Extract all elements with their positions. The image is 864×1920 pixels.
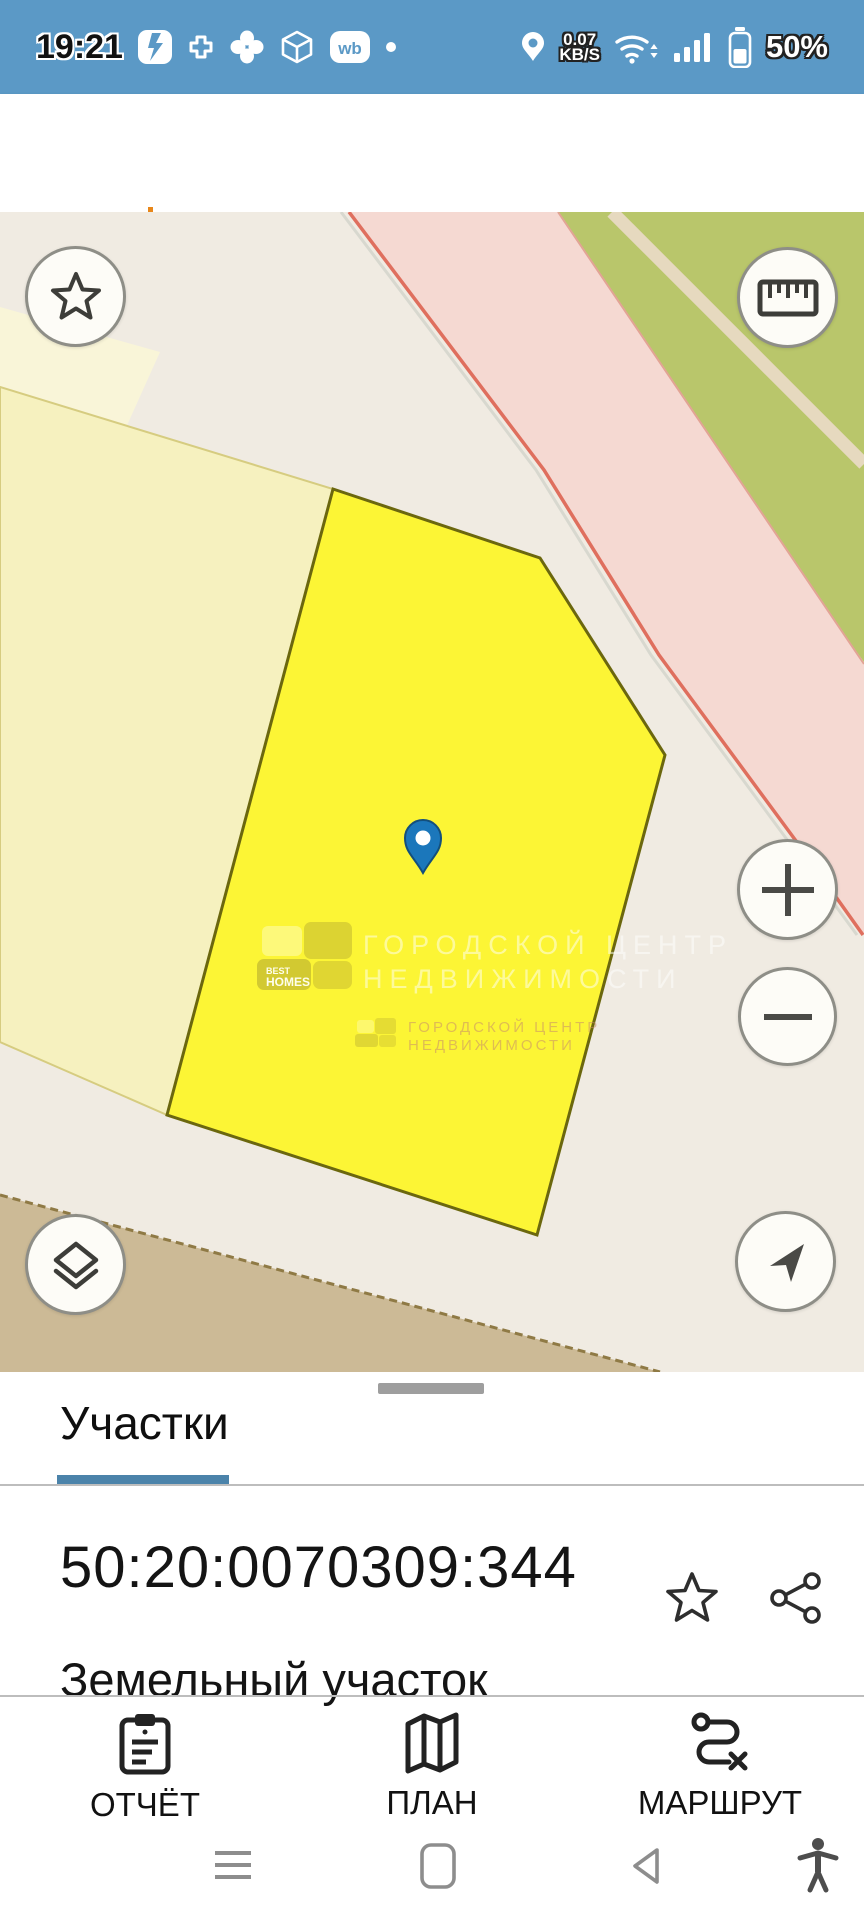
share-parcel-button[interactable] [768, 1570, 824, 1626]
measure-button[interactable] [737, 247, 838, 348]
battery-percent: 50% [766, 29, 828, 65]
minus-icon [757, 986, 819, 1048]
report-label: ОТЧЁТ [90, 1786, 200, 1824]
accessibility-button[interactable] [796, 1836, 840, 1894]
three-lines-icon [212, 1845, 254, 1885]
parcel-type: Земельный участок [60, 1652, 488, 1707]
battery-icon [728, 26, 752, 68]
sheet-drag-handle[interactable] [378, 1383, 484, 1394]
box-notification-icon [279, 29, 315, 65]
svg-text:НЕДВИЖИМОСТИ: НЕДВИЖИМОСТИ [408, 1037, 575, 1054]
layers-button[interactable] [25, 1214, 126, 1315]
app-notification-icon [137, 29, 173, 65]
home-button[interactable] [418, 1841, 458, 1891]
tab-active-indicator [57, 1475, 229, 1484]
divider [0, 1695, 864, 1697]
wb-notification-icon: wb [329, 30, 371, 64]
divider [0, 1484, 864, 1486]
route-icon [689, 1712, 751, 1774]
plus-icon [757, 859, 819, 921]
zoom-out-button[interactable] [738, 967, 837, 1066]
bottom-sheet [0, 1372, 864, 1920]
favorites-button[interactable] [25, 246, 126, 347]
clock: 19:21 [36, 28, 123, 67]
report-button[interactable]: ОТЧЁТ [35, 1712, 255, 1824]
svg-text:ГОРОДСКОЙ ЦЕНТР: ГОРОДСКОЙ ЦЕНТР [408, 1018, 600, 1036]
star-icon [662, 1568, 722, 1628]
map-canvas[interactable]: BEST HOMES ГОРОДСКОЙ ЦЕНТР НЕДВИЖИМОСТИ … [0, 212, 864, 1372]
screen: 19:21 wb 0.07 [0, 0, 864, 1920]
route-button[interactable]: МАРШРУТ [610, 1712, 830, 1822]
favorite-parcel-button[interactable] [662, 1568, 722, 1628]
dot-notification-icon [385, 41, 397, 53]
svg-text:ГОРОДСКОЙ ЦЕНТР: ГОРОДСКОЙ ЦЕНТР [363, 929, 733, 960]
ruler-icon [757, 276, 819, 320]
data-rate: 0.07 KB/S [559, 32, 600, 62]
tab-parcels[interactable]: Участки [60, 1396, 229, 1450]
back-triangle-icon [626, 1844, 666, 1888]
report-clipboard-icon [118, 1712, 172, 1776]
plan-label: ПЛАН [386, 1784, 477, 1822]
star-icon [47, 268, 105, 326]
zoom-in-button[interactable] [737, 839, 838, 940]
parcel-number: 50:20:0070309:344 [60, 1534, 577, 1601]
home-square-icon [418, 1841, 458, 1891]
wifi-icon [614, 30, 660, 64]
my-location-button[interactable] [735, 1211, 836, 1312]
svg-text:wb: wb [337, 39, 362, 58]
clover-notification-icon [229, 29, 265, 65]
back-button[interactable] [626, 1844, 666, 1888]
location-pin-icon [521, 32, 545, 62]
status-bar: 19:21 wb 0.07 [0, 0, 864, 94]
svg-text:HOMES: HOMES [266, 975, 310, 989]
navigation-arrow-icon [758, 1234, 814, 1290]
route-label: МАРШРУТ [638, 1784, 802, 1822]
layers-icon [47, 1236, 105, 1294]
share-icon [768, 1570, 824, 1626]
svg-text:НЕДВИЖИМОСТИ: НЕДВИЖИМОСТИ [363, 964, 683, 994]
recent-apps-button[interactable] [212, 1845, 254, 1885]
search-bar[interactable]: Поиск [0, 94, 864, 212]
accessibility-person-icon [796, 1836, 840, 1894]
plus-notification-icon [187, 33, 215, 61]
plan-map-icon [402, 1712, 462, 1774]
plan-button[interactable]: ПЛАН [322, 1712, 542, 1822]
signal-bars-icon [674, 31, 714, 63]
